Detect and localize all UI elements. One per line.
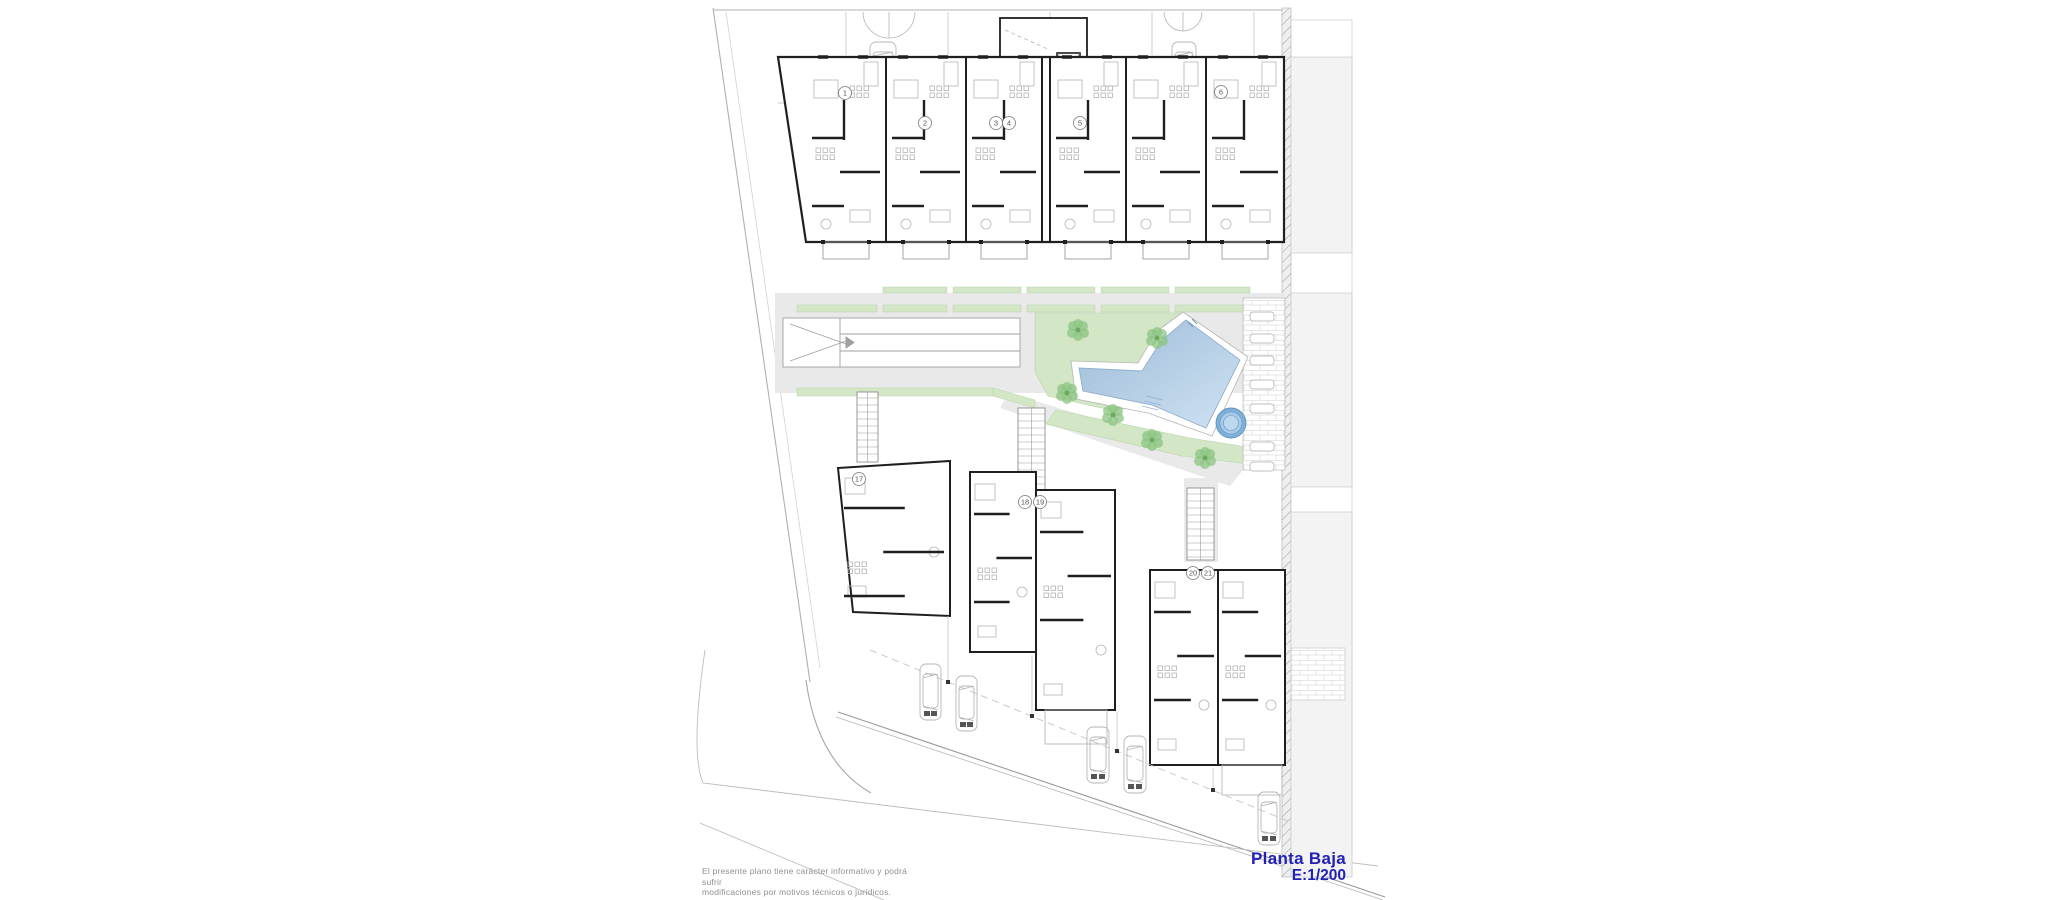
svg-text:21: 21 <box>1204 569 1212 578</box>
disclaimer-note: El presente plano tiene carácter informa… <box>702 866 917 898</box>
plan-title: Planta Baja <box>1150 850 1346 868</box>
unit-badge-3: 3 <box>990 117 1003 130</box>
svg-text:2: 2 <box>923 119 927 128</box>
unit-badge-2: 2 <box>919 117 932 130</box>
svg-text:1: 1 <box>843 89 847 98</box>
unit-badge-18: 18 <box>1019 496 1032 509</box>
svg-text:20: 20 <box>1189 569 1197 578</box>
jacuzzi <box>1216 408 1246 438</box>
svg-text:3: 3 <box>994 119 998 128</box>
garage-ramp <box>783 318 1020 367</box>
svg-text:18: 18 <box>1021 498 1029 507</box>
unit-badge-1: 1 <box>839 87 852 100</box>
unit-badge-5: 5 <box>1074 117 1087 130</box>
floor-plan-page: 1234561718192021 El presente plano tiene… <box>0 0 2048 900</box>
unit-badge-17: 17 <box>853 473 866 486</box>
neighbor-plots <box>1291 20 1352 877</box>
plan-title-block: Planta Baja E:1/200 <box>1150 850 1346 884</box>
disclaimer-line2: modificaciones por motivos técnicos o ju… <box>702 887 917 898</box>
svg-text:19: 19 <box>1036 498 1044 507</box>
disclaimer-line1: El presente plano tiene carácter informa… <box>702 866 917 887</box>
svg-text:17: 17 <box>855 475 863 484</box>
unit-badge-21: 21 <box>1202 567 1215 580</box>
paved-sunbathing-area <box>1243 298 1285 471</box>
lower-building-cluster-east <box>1150 570 1285 795</box>
svg-text:5: 5 <box>1078 119 1082 128</box>
plan-scale: E:1/200 <box>1150 868 1346 884</box>
svg-text:6: 6 <box>1219 88 1223 97</box>
unit-badge-19: 19 <box>1034 496 1047 509</box>
unit-badge-6: 6 <box>1215 86 1228 99</box>
svg-text:4: 4 <box>1007 119 1011 128</box>
top-building-block <box>778 57 1284 259</box>
unit-badge-4: 4 <box>1003 117 1016 130</box>
site-plan-drawing: 1234561718192021 <box>0 0 2048 900</box>
lower-building-cluster-west <box>838 461 1115 744</box>
unit-badge-20: 20 <box>1187 567 1200 580</box>
